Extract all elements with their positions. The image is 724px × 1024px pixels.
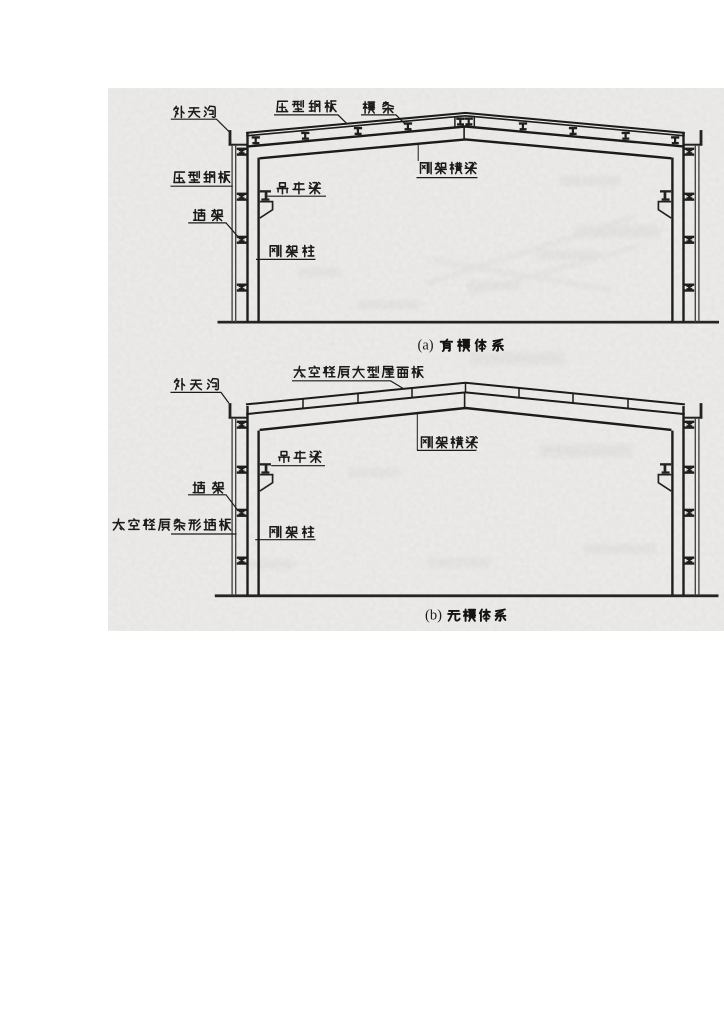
svg-text:(a): (a) xyxy=(418,338,434,354)
svg-text:(b): (b) xyxy=(425,608,442,624)
